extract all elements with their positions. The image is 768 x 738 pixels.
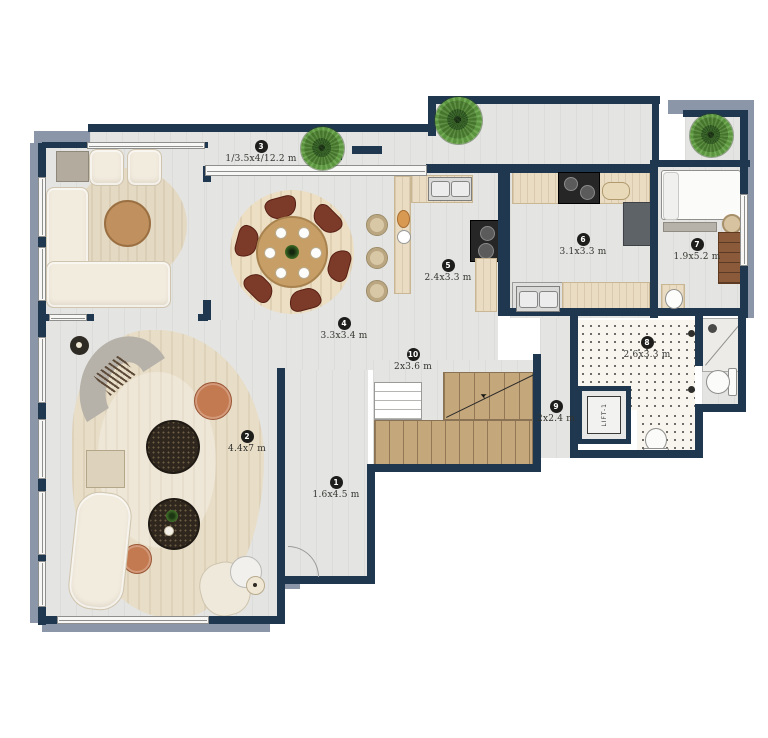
plate xyxy=(264,247,276,259)
window xyxy=(39,562,45,606)
room-label-10: 10 2x3.6 m xyxy=(363,348,463,372)
wall xyxy=(652,160,750,167)
plate xyxy=(298,227,310,239)
room-number-badge: 3 xyxy=(255,140,268,153)
potted-plant xyxy=(690,114,733,157)
bedside-table xyxy=(722,214,742,234)
bar-stool xyxy=(366,280,388,302)
room-number-badge: 6 xyxy=(577,233,590,246)
lamp-bulb xyxy=(76,342,82,348)
pan xyxy=(480,226,495,241)
bathroom-tile-floor xyxy=(637,410,695,453)
potted-plant xyxy=(435,97,482,144)
room-label-3: 3 1/3.5x4/12.2 m xyxy=(211,140,311,164)
wall xyxy=(498,166,510,316)
room-number-badge: 2 xyxy=(241,430,254,443)
stair-storage xyxy=(374,382,422,420)
room-number-badge: 7 xyxy=(691,238,704,251)
plate xyxy=(310,247,322,259)
room-label-6: 6 3.1x3.3 m xyxy=(533,233,633,257)
window xyxy=(39,420,45,478)
round-coffee-table xyxy=(146,420,200,474)
armchair xyxy=(89,149,124,186)
window xyxy=(39,248,45,300)
room-label-2: 2 4.4x7 m xyxy=(197,430,297,454)
wall xyxy=(652,103,659,167)
room-number-badge: 8 xyxy=(641,336,654,349)
room-dimension: 2.6x3.3 m xyxy=(597,350,697,360)
room-dimension: 3.3x3.4 m xyxy=(294,331,394,341)
table-flower xyxy=(164,526,174,536)
double-sink xyxy=(428,177,472,201)
side-table xyxy=(56,151,89,182)
pan xyxy=(580,185,595,200)
window xyxy=(39,178,45,236)
cooktop xyxy=(558,172,600,204)
window xyxy=(39,338,45,402)
room-number-badge: 5 xyxy=(442,259,455,272)
room-dimension: 1/3.5x4/12.2 m xyxy=(211,154,311,164)
plate xyxy=(298,267,310,279)
wall-stub xyxy=(198,314,208,321)
window xyxy=(50,315,86,320)
window xyxy=(58,617,208,623)
round-coffee-table xyxy=(148,498,200,550)
bed-bench xyxy=(663,222,717,232)
washbasin xyxy=(665,289,683,309)
sink-basin xyxy=(451,181,470,197)
room-dimension: 2x2.4 m xyxy=(506,414,606,424)
room-dimension: 1.9x5.2 m xyxy=(647,252,747,262)
room-dimension: 3.1x3.3 m xyxy=(533,247,633,257)
terracotta-pouf xyxy=(194,382,232,420)
room-label-8: 8 2.6x3.3 m xyxy=(597,336,697,360)
floor-lamp xyxy=(246,576,265,595)
plate xyxy=(275,267,287,279)
room-number-badge: 9 xyxy=(550,400,563,413)
shower-head xyxy=(708,324,717,333)
plate xyxy=(275,227,287,239)
room-number-badge: 1 xyxy=(330,476,343,489)
room-dimension: 2.4x3.3 m xyxy=(398,273,498,283)
room-label-1: 1 1.6x4.5 m xyxy=(286,476,386,500)
serving-plate xyxy=(602,182,630,200)
table-centerpiece-plant xyxy=(285,245,299,259)
pan xyxy=(478,243,494,259)
wall xyxy=(367,464,541,472)
room-label-4: 4 3.3x3.4 m xyxy=(294,317,394,341)
wall xyxy=(277,576,375,584)
pan xyxy=(564,177,578,191)
toilet xyxy=(706,370,730,394)
wall xyxy=(88,124,434,132)
wall xyxy=(695,404,703,458)
floor-plan: LIFT-1 ➤ 1 1.6x4.5 m 2 4.4x7 m 3 xyxy=(0,0,768,738)
coffee-table xyxy=(104,200,151,247)
sofa xyxy=(46,261,171,308)
pastry xyxy=(397,210,410,228)
bar-stool xyxy=(366,214,388,236)
plate xyxy=(397,230,411,244)
sink-basin xyxy=(519,291,538,308)
sink-basin xyxy=(539,291,558,308)
pillow xyxy=(663,172,679,220)
wall xyxy=(277,368,285,624)
sink-basin xyxy=(431,181,450,197)
room-dimension: 1.6x4.5 m xyxy=(286,490,386,500)
room-number-badge: 10 xyxy=(407,348,420,361)
window xyxy=(39,492,45,554)
room-number-badge: 4 xyxy=(338,317,351,330)
room-dimension: 2x3.6 m xyxy=(363,362,463,372)
wall xyxy=(426,164,658,173)
wall xyxy=(570,450,702,458)
terrace-door-frame xyxy=(352,146,382,154)
armchair xyxy=(127,149,162,186)
room-dimension: 4.4x7 m xyxy=(197,444,297,454)
wall-light xyxy=(688,386,695,393)
square-side-table xyxy=(86,450,125,488)
window xyxy=(88,143,204,148)
stairs-lower xyxy=(374,420,533,468)
bar-stool xyxy=(366,247,388,269)
room-label-5: 5 2.4x3.3 m xyxy=(398,259,498,283)
lamp-bulb xyxy=(253,583,257,587)
floor-lamp xyxy=(70,336,89,355)
wall xyxy=(738,316,746,412)
room-label-7: 7 1.9x5.2 m xyxy=(647,238,747,262)
table-plant xyxy=(166,510,178,522)
double-sink xyxy=(516,286,560,312)
room-label-9: 9 2x2.4 m xyxy=(506,400,606,424)
